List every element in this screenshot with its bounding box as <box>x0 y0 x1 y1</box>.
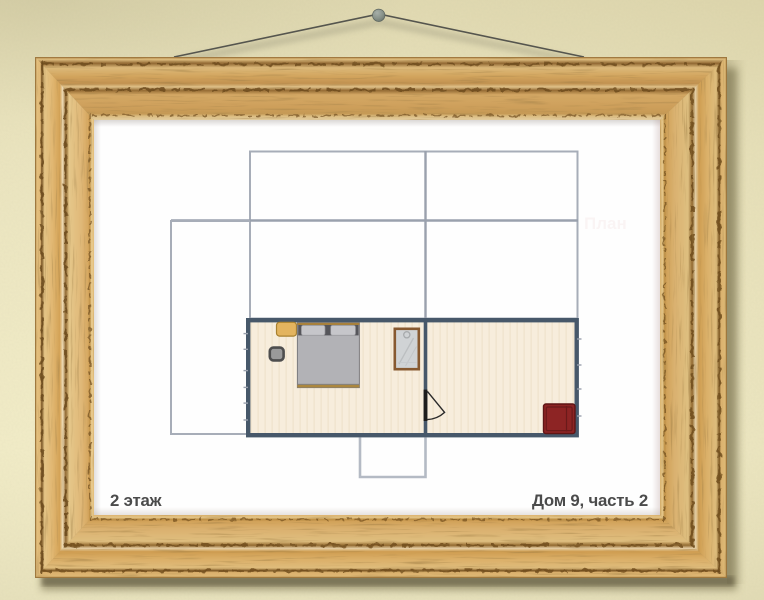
svg-text:Дом 9, часть 2: Дом 9, часть 2 <box>532 491 648 510</box>
svg-text:2 этаж: 2 этаж <box>110 491 163 510</box>
svg-text:План: План <box>584 214 627 233</box>
